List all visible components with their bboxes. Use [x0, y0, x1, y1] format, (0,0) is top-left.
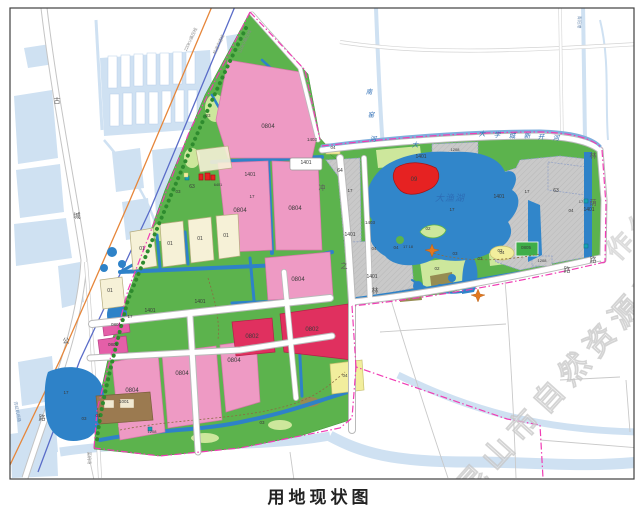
map-label: 17	[347, 188, 353, 193]
map-canvas: 昆山市自然资源和规划局 作公 0804080408040804080408040…	[0, 0, 640, 507]
map-label: 林	[372, 286, 379, 295]
map-label: 1403	[307, 137, 318, 142]
map-label: 1208	[538, 258, 548, 263]
map-label: 01	[139, 246, 145, 252]
map-label: 路	[39, 413, 46, 422]
map-label: 17 18	[403, 244, 414, 249]
map-label: 1401	[144, 308, 155, 314]
map-label: 0801	[108, 342, 119, 347]
map-label: 1401	[583, 207, 594, 213]
map-label: 63	[189, 184, 195, 190]
map-label: 17	[249, 194, 255, 199]
map-label: 01	[223, 233, 229, 239]
map-label: 04	[499, 250, 505, 255]
map-label: 6401	[214, 183, 222, 187]
map-label: 1401	[493, 194, 504, 200]
map-label: 04	[393, 245, 399, 250]
map-label: 0802	[245, 334, 259, 340]
map-label: 冲	[319, 183, 326, 192]
map-label: 窑	[368, 111, 376, 119]
map-label: 0804	[125, 388, 139, 394]
map-label: 公	[63, 337, 70, 345]
map-label: 17	[579, 199, 584, 204]
map-label: 17	[127, 314, 133, 319]
map-label: 荫	[590, 198, 597, 207]
map-label: 1208	[451, 147, 461, 152]
map-label: 0804	[227, 358, 241, 364]
map-label: 0804	[288, 206, 302, 212]
map-label: 古	[54, 96, 61, 105]
map-label: 1401	[344, 232, 355, 238]
map-label: 1001	[119, 399, 130, 404]
map-label: 03	[477, 256, 483, 261]
map-label: 0804	[261, 124, 275, 130]
map-label: 路	[564, 265, 571, 274]
map-label: 1208	[148, 429, 158, 434]
map-label: 0805	[521, 245, 532, 250]
map-caption: 用地现状图	[0, 483, 640, 508]
map-label: 大渔湖	[435, 193, 466, 203]
map-label: 64	[337, 168, 343, 174]
map-label: 63	[553, 188, 559, 194]
map-label: 03	[175, 189, 181, 194]
map-label: 0804	[233, 208, 247, 214]
map-label: 01	[107, 288, 113, 294]
map-label: 1401	[194, 299, 205, 305]
map-label: 09	[411, 177, 418, 183]
map-label: 17	[63, 390, 69, 395]
land-use-status-map: 昆山市自然资源和规划局 作公 0804080408040804080408040…	[0, 0, 640, 507]
map-label: 04	[371, 246, 377, 251]
map-label: 1401	[415, 154, 426, 160]
map-label: 0804	[291, 277, 305, 283]
map-label: 01	[197, 236, 203, 242]
map-label: 03	[259, 420, 265, 425]
map-label: 林	[590, 151, 597, 160]
map-label: 1403	[365, 220, 376, 225]
map-label: 04	[568, 208, 574, 213]
map-label: 04	[330, 145, 336, 150]
map-label: 03	[81, 416, 87, 421]
map-label: 02	[434, 266, 440, 271]
map-label: 03	[452, 251, 458, 256]
map-label: 1401	[366, 274, 377, 280]
map-label: 城	[74, 212, 81, 220]
map-label: 17	[524, 189, 530, 194]
map-label: 至机场	[86, 452, 93, 465]
map-label: 南	[366, 88, 374, 96]
map-label: 0802	[305, 327, 319, 333]
map-label: 04	[342, 373, 348, 378]
map-label: 02	[425, 226, 431, 231]
map-label: 01	[95, 413, 101, 418]
map-label: 17	[449, 207, 455, 212]
map-label: 03	[205, 113, 211, 118]
map-label: 1401	[244, 172, 255, 178]
map-label: 1401	[300, 160, 311, 166]
map-label: 220KV高压线	[182, 26, 199, 52]
map-label: 01	[167, 241, 173, 247]
map-label: 路	[590, 255, 597, 264]
map-label: 青阳港	[576, 16, 583, 29]
map-label: 0801	[111, 322, 122, 327]
map-label: 0804	[175, 371, 189, 377]
map-label: 之	[341, 261, 348, 270]
map-label: 轨道交通线	[211, 33, 227, 56]
